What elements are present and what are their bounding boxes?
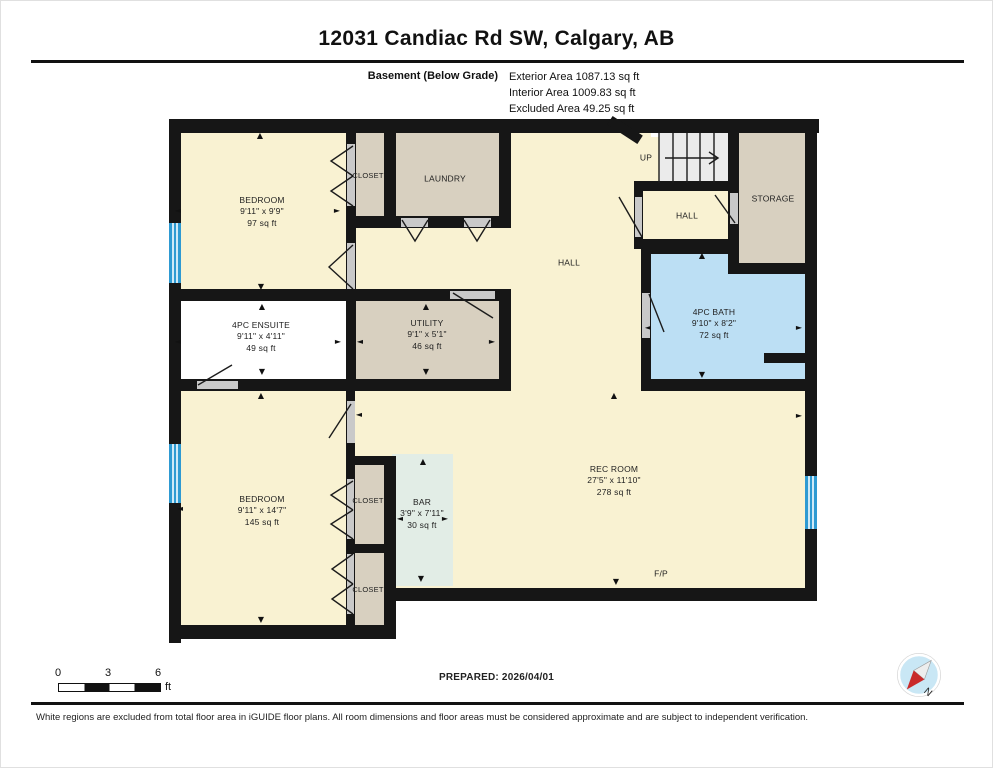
- excluded-area: Excluded Area 49.25 sq ft: [509, 103, 634, 115]
- room-name: UTILITY: [407, 318, 446, 329]
- interior-area: Interior Area 1009.83 sq ft: [509, 87, 636, 99]
- dim-arrow-right: ►: [796, 324, 802, 332]
- room-label-ensuite: 4PC ENSUITE 9'11" x 4'11" 49 sq ft: [232, 320, 290, 354]
- stairs-up-label: UP: [640, 152, 652, 163]
- wall: [805, 119, 817, 274]
- room-label-closet-top: CLOSET: [352, 171, 383, 181]
- dim-arrow-up: ▲: [611, 392, 617, 400]
- wall: [805, 263, 817, 601]
- dim-arrow-left: ◄: [357, 338, 363, 346]
- room-name: REC ROOM: [587, 464, 641, 475]
- door-opening: [401, 218, 428, 227]
- compass-icon: [894, 650, 944, 700]
- dim-arrow-right: ►: [796, 412, 802, 420]
- dim-arrow-down: ▼: [699, 371, 705, 379]
- dim-arrow-up: ▲: [699, 252, 705, 260]
- dim-arrow-right: ►: [334, 207, 340, 215]
- dim-arrow-left: ◄: [175, 207, 181, 215]
- room-dims: 9'11" x 14'7": [238, 505, 287, 516]
- page-title: 12031 Candiac Rd SW, Calgary, AB: [1, 27, 992, 51]
- wall: [728, 263, 817, 274]
- dim-arrow-up: ▲: [257, 132, 263, 140]
- room-dims: 9'11" x 4'11": [232, 331, 290, 342]
- prepared-date: PREPARED: 2026/04/01: [1, 672, 992, 683]
- room-area: 278 sq ft: [587, 487, 641, 498]
- room-area: 46 sq ft: [407, 341, 446, 352]
- fireplace-label: F/P: [654, 568, 668, 579]
- room-label-hall-main: HALL: [558, 257, 580, 268]
- room-area: 30 sq ft: [400, 520, 444, 531]
- wall: [641, 181, 736, 191]
- wall: [499, 131, 511, 228]
- dim-arrow-up: ▲: [258, 392, 264, 400]
- door-opening: [730, 193, 738, 224]
- dim-arrow-left: ◄: [356, 411, 362, 419]
- dim-arrow-down: ▼: [258, 283, 264, 291]
- dim-arrow-down: ▼: [613, 578, 619, 586]
- header-divider: [31, 60, 964, 63]
- room-label-bath: 4PC BATH 9'10" x 8'2" 72 sq ft: [692, 307, 736, 341]
- room-area: 145 sq ft: [238, 517, 287, 528]
- wall: [384, 119, 396, 219]
- room-name: 4PC BATH: [692, 307, 736, 318]
- laundry-floor: [392, 125, 501, 219]
- room-label-storage: STORAGE: [752, 193, 795, 204]
- dim-arrow-right: ►: [335, 338, 341, 346]
- wall: [169, 119, 819, 133]
- dim-arrow-up: ▲: [259, 303, 265, 311]
- room-name: BAR: [400, 497, 444, 508]
- dim-arrow-left: ◄: [177, 505, 183, 513]
- room-label-bedroom2: BEDROOM 9'11" x 14'7" 145 sq ft: [238, 494, 287, 528]
- door-opening: [635, 197, 642, 237]
- dim-arrow-down: ▼: [418, 575, 424, 583]
- room-label-bedroom1: BEDROOM 9'11" x 9'9" 97 sq ft: [239, 195, 284, 229]
- room-area: 97 sq ft: [239, 218, 284, 229]
- room-label-hall-small: HALL: [676, 210, 698, 221]
- wall: [346, 544, 396, 553]
- room-name: 4PC ENSUITE: [232, 320, 290, 331]
- room-dims: 9'11" x 9'9": [239, 206, 284, 217]
- dim-arrow-down: ▼: [423, 368, 429, 376]
- room-label-closet-mid: CLOSET: [352, 496, 383, 506]
- wall: [641, 379, 817, 391]
- dim-arrow-left: ◄: [175, 338, 181, 346]
- scale-bar: [58, 683, 161, 692]
- wall: [499, 289, 511, 391]
- staircase: [659, 133, 728, 183]
- dim-arrow-left: ◄: [645, 324, 651, 332]
- door-opening: [197, 381, 238, 389]
- room-dims: 27'5" x 11'10": [587, 475, 641, 486]
- door-opening: [450, 291, 495, 299]
- door-opening: [347, 243, 355, 289]
- dim-arrow-up: ▲: [423, 303, 429, 311]
- window: [805, 476, 817, 529]
- door-opening: [347, 479, 354, 539]
- room-area: 72 sq ft: [692, 330, 736, 341]
- wall: [764, 353, 807, 363]
- room-label-utility: UTILITY 9'1" x 5'1" 46 sq ft: [407, 318, 446, 352]
- room-label-laundry: LAUNDRY: [424, 173, 466, 184]
- room-label-rec-room: REC ROOM 27'5" x 11'10" 278 sq ft: [587, 464, 641, 498]
- room-dims: 9'1" x 5'1": [407, 329, 446, 340]
- room-label-closet-bottom: CLOSET: [352, 585, 383, 595]
- dim-arrow-right: ►: [489, 338, 495, 346]
- wall: [384, 588, 817, 601]
- door-opening: [347, 401, 355, 443]
- room-name: BEDROOM: [239, 195, 284, 206]
- room-dims: 9'10" x 8'2": [692, 318, 736, 329]
- wall: [641, 244, 738, 254]
- wall: [169, 625, 394, 639]
- dim-arrow-down: ▼: [259, 368, 265, 376]
- window: [169, 444, 181, 503]
- wall: [384, 456, 396, 596]
- window: [169, 223, 181, 283]
- room-label-bar: BAR 3'9" x 7'11" 30 sq ft: [400, 497, 444, 531]
- disclaimer-text: White regions are excluded from total fl…: [36, 712, 808, 723]
- dim-arrow-up: ▲: [420, 458, 426, 466]
- dim-arrow-down: ▼: [258, 616, 264, 624]
- exterior-area: Exterior Area 1087.13 sq ft: [509, 71, 639, 83]
- room-name: BEDROOM: [238, 494, 287, 505]
- room-dims: 3'9" x 7'11": [400, 508, 444, 519]
- room-area: 49 sq ft: [232, 343, 290, 354]
- floorplan-page: 12031 Candiac Rd SW, Calgary, AB Basemen…: [0, 0, 993, 768]
- floor-name: Basement (Below Grade): [331, 70, 498, 82]
- wall: [346, 301, 356, 384]
- door-opening: [464, 218, 491, 227]
- footer-divider: [31, 702, 964, 705]
